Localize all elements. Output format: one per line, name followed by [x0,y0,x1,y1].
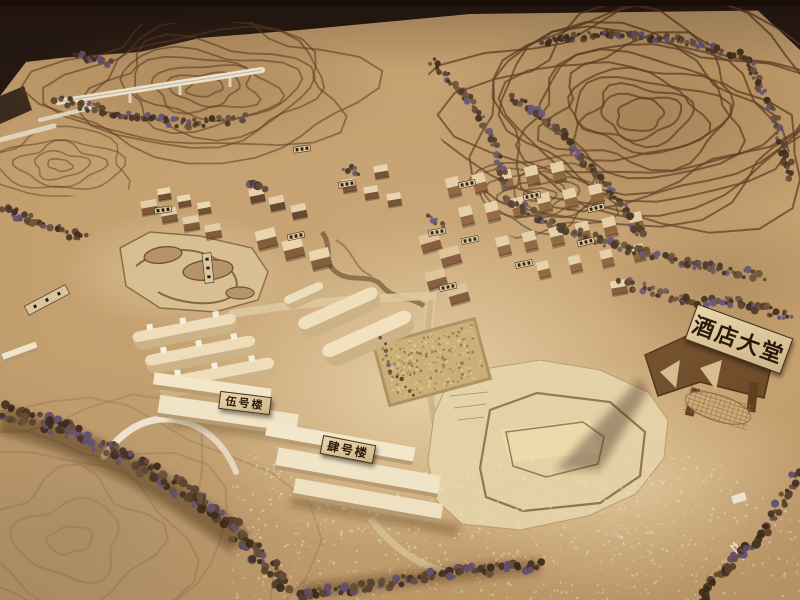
model-house [373,164,389,181]
model-house [177,194,192,209]
model-house [157,187,172,202]
model-house [182,215,201,233]
model-house [386,192,402,209]
model-house [197,201,212,216]
model-house [204,223,223,241]
model-house [363,185,379,202]
scale-model-photo: 酒店大堂 伍号楼 肆号楼 [0,0,800,600]
model-photo-canvas [0,0,800,600]
